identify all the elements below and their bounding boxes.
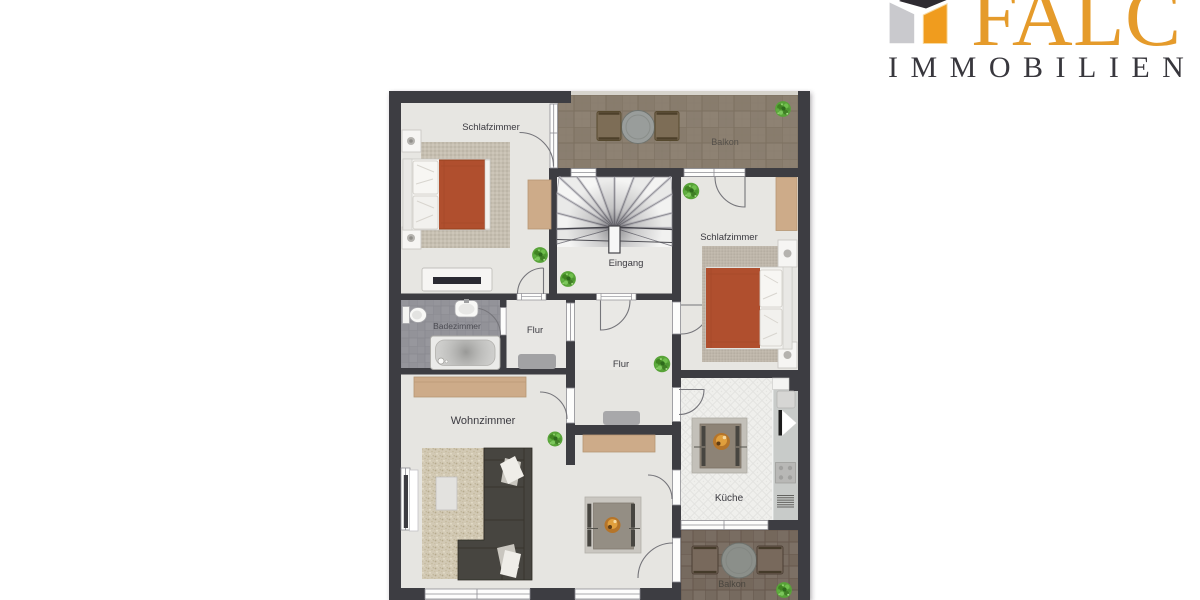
svg-text:Schlafzimmer: Schlafzimmer — [462, 122, 520, 133]
svg-text:IMMOBILIEN: IMMOBILIEN — [888, 51, 1196, 84]
svg-text:Eingang: Eingang — [609, 258, 644, 269]
svg-text:Flur: Flur — [527, 325, 543, 336]
svg-text:Balkon: Balkon — [718, 579, 746, 589]
svg-text:Wohnzimmer: Wohnzimmer — [451, 415, 516, 427]
svg-text:Küche: Küche — [715, 493, 744, 504]
svg-text:Balkon: Balkon — [711, 137, 739, 147]
svg-text:Badezimmer: Badezimmer — [433, 321, 481, 331]
svg-text:Schlafzimmer: Schlafzimmer — [700, 232, 758, 243]
svg-text:Flur: Flur — [613, 359, 629, 370]
